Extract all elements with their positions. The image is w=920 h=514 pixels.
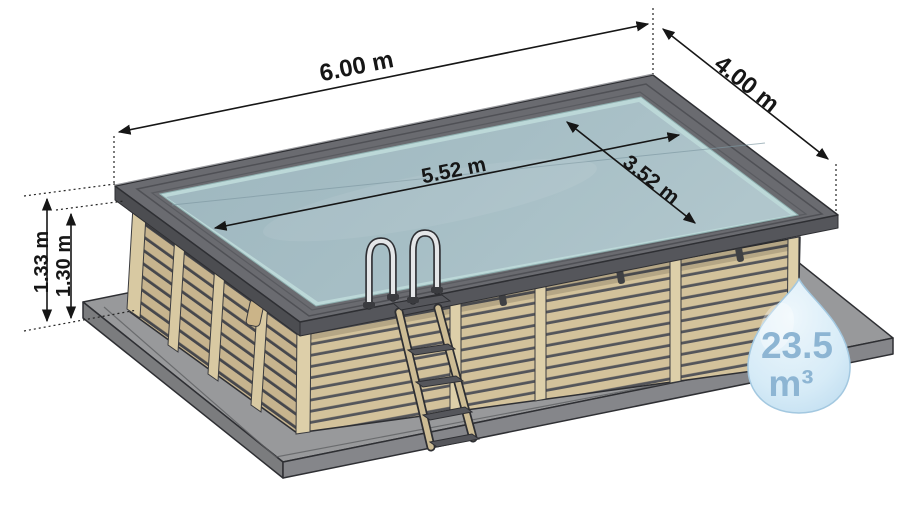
extension-line (24, 184, 115, 196)
wall-post (296, 322, 311, 434)
handrail-foot (387, 294, 399, 300)
handrail-foot (407, 297, 419, 303)
pool-dimension-diagram: 6.00 m 4.00 m 5.52 m 3.52 m 1.33 m 1.30 … (0, 0, 920, 514)
volume-value-label: 23.5 (761, 325, 833, 366)
height-water-label: 1.30 m (53, 235, 75, 297)
outer-length-label: 6.00 m (317, 46, 396, 87)
height-total-label: 1.33 m (31, 231, 53, 293)
pool-illustration: 6.00 m 4.00 m 5.52 m 3.52 m 1.33 m 1.30 … (0, 0, 920, 514)
wall-post (670, 259, 681, 383)
handrail-foot (363, 302, 375, 308)
wall-post (535, 284, 546, 401)
handrail-foot (431, 287, 443, 293)
outer-width-label: 4.00 m (709, 50, 784, 118)
volume-unit-label: m³ (768, 363, 813, 404)
extension-line (56, 201, 124, 210)
